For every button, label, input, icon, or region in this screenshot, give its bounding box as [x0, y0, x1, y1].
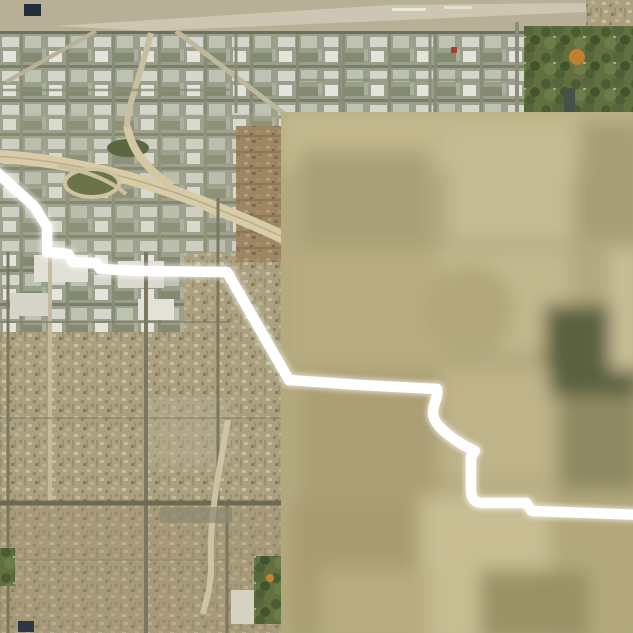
dark-roof-building-top	[24, 4, 41, 16]
top-right-houses	[586, 0, 633, 30]
roadside-commercial	[160, 507, 232, 523]
low-res-tile-region	[260, 92, 633, 633]
lowres-blob	[610, 250, 633, 370]
lowres-blob	[320, 570, 430, 633]
low-res-tile-blobs	[260, 92, 633, 633]
runway-marking-2	[444, 6, 472, 9]
bigbox-store-4	[138, 299, 174, 320]
vacant-lot	[231, 590, 258, 624]
lowres-blob	[560, 395, 633, 490]
dark-roof-building-bottom	[18, 621, 34, 632]
lowres-blob	[425, 265, 515, 355]
bigbox-store-3	[10, 293, 52, 316]
lowres-blob	[290, 250, 440, 370]
lowres-blob	[580, 120, 633, 240]
lowres-blob	[450, 130, 570, 240]
park-pond	[564, 88, 575, 113]
brown-roof-neighborhood	[236, 126, 283, 262]
lowres-blob	[480, 570, 590, 633]
satellite-map-canvas	[0, 0, 633, 633]
satellite-map-view[interactable]	[0, 0, 633, 633]
lowres-blob	[440, 370, 550, 480]
left-green-strip	[0, 548, 15, 586]
ballfield-park	[254, 556, 283, 624]
lowres-blob	[300, 150, 430, 250]
ballfield-infield	[266, 574, 274, 582]
red-roof-building	[451, 47, 457, 53]
city-park	[524, 26, 633, 113]
runway-marking-1	[392, 8, 426, 11]
orange-tree-grove	[569, 49, 585, 65]
